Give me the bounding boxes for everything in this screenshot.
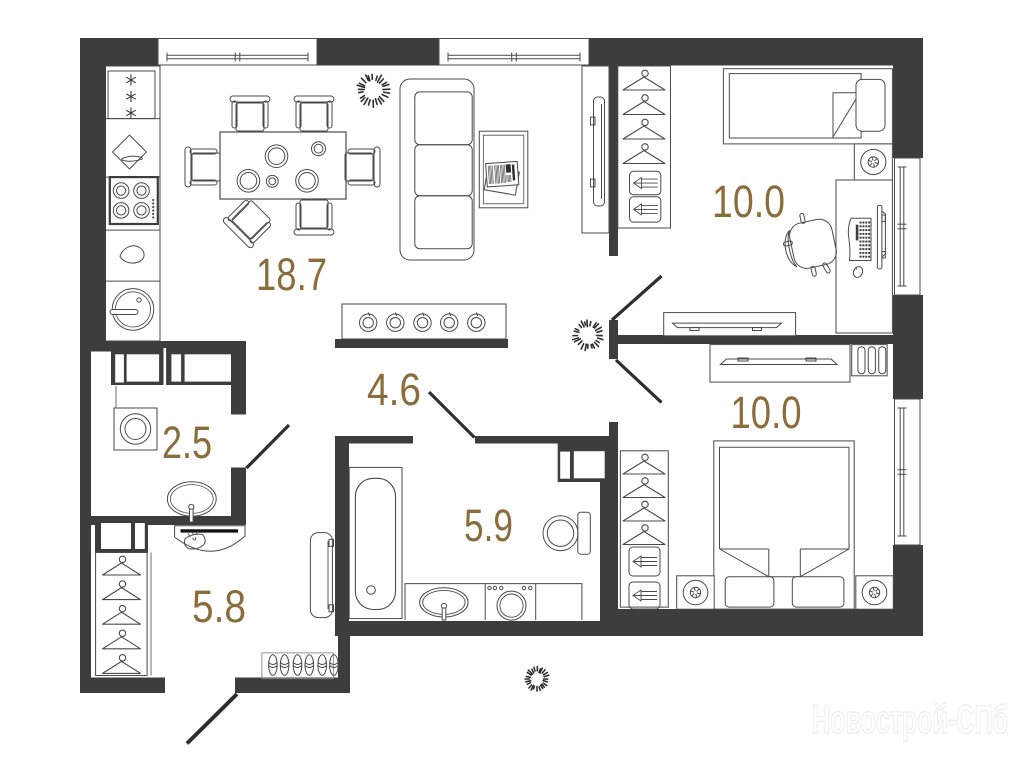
svg-text:18.7: 18.7	[256, 249, 327, 300]
svg-text:5.9: 5.9	[464, 500, 513, 551]
svg-text:10.0: 10.0	[731, 387, 802, 438]
svg-text:4.6: 4.6	[367, 364, 421, 415]
svg-text:5.8: 5.8	[192, 581, 246, 632]
svg-text:10.0: 10.0	[712, 176, 785, 227]
svg-text:Новострой-СПб: Новострой-СПб	[812, 698, 1008, 742]
svg-text:2.5: 2.5	[162, 417, 212, 468]
